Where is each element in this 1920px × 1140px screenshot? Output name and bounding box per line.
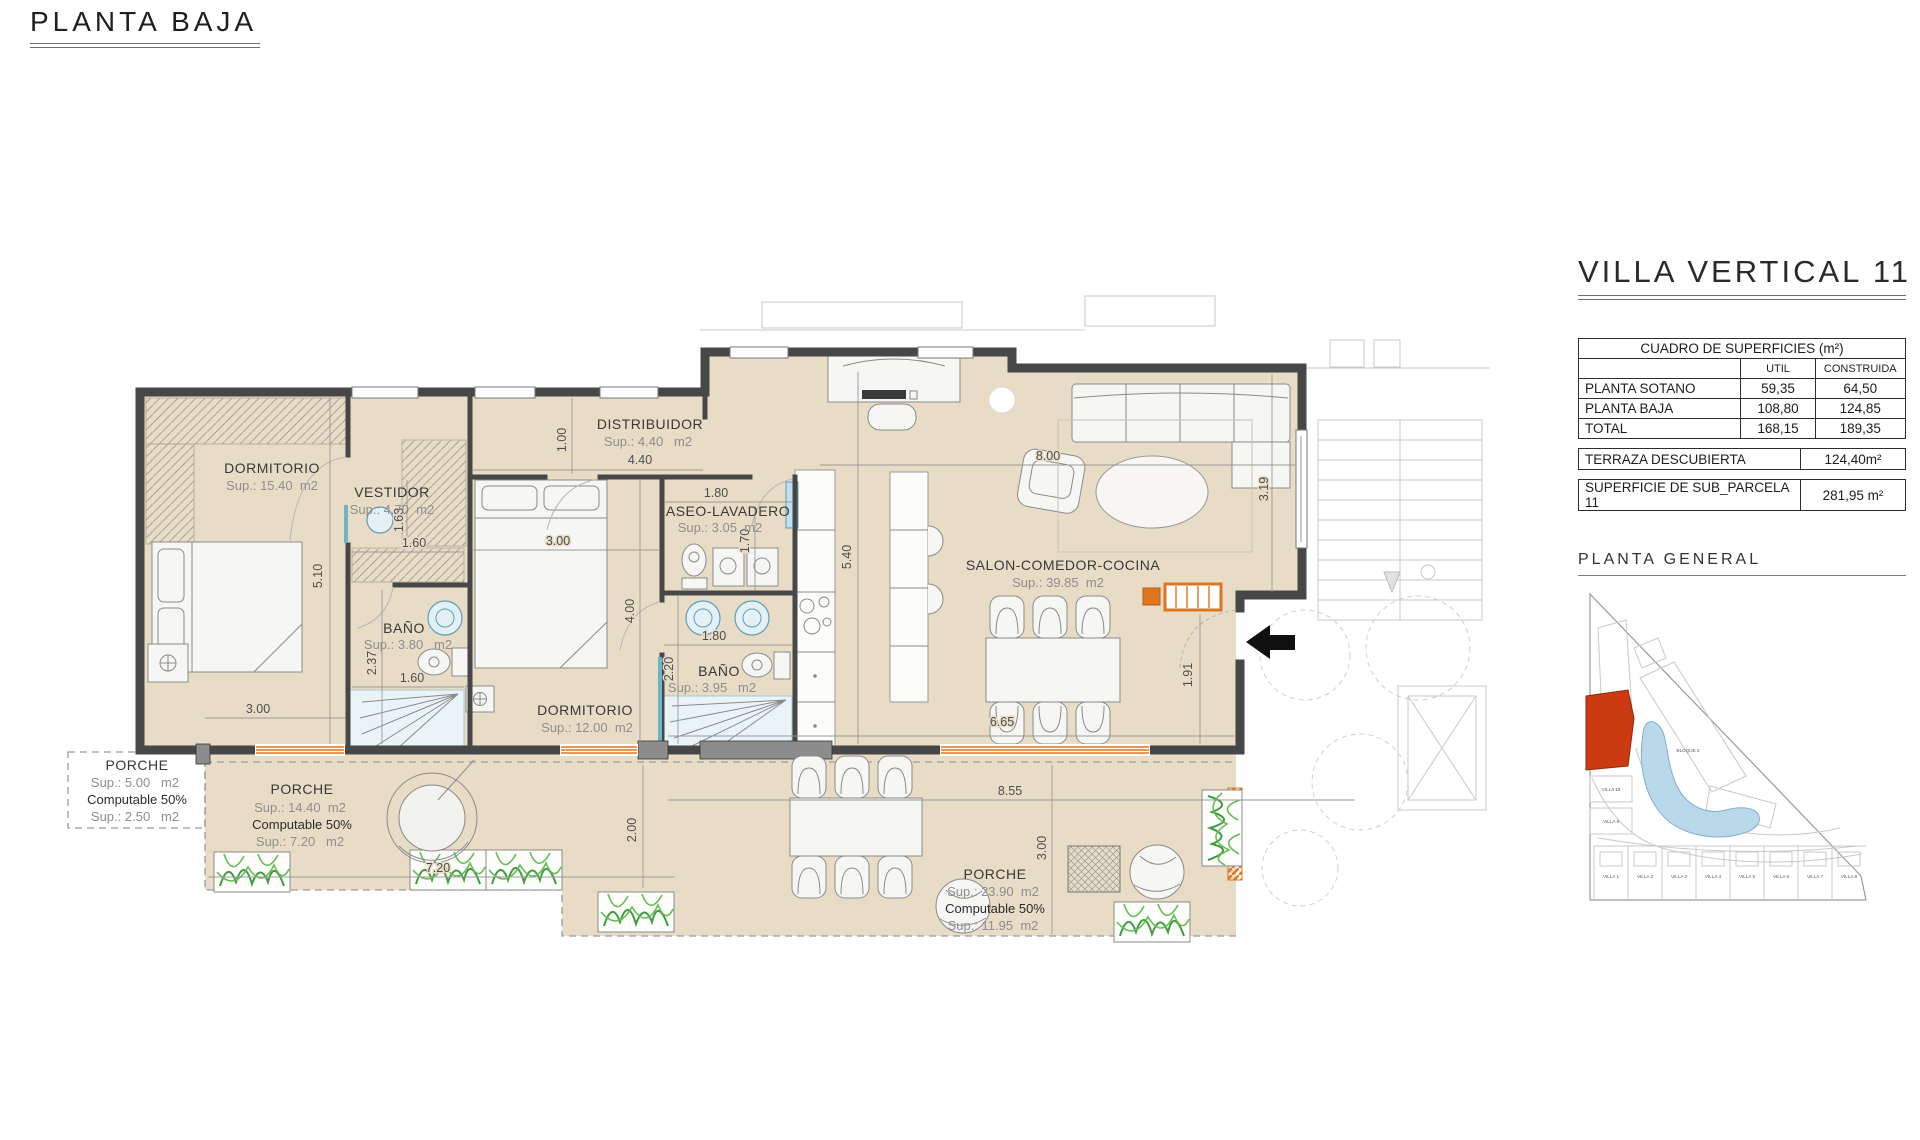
surfaces-table: CUADRO DE SUPERFICIES (m²) UTIL CONSTRUI… — [1578, 338, 1906, 439]
terraza-table: TERRAZA DESCUBIERTA 124,40m² — [1578, 448, 1906, 470]
room-sup-dormitorio2: Sup.: 12.00 m2 — [541, 720, 633, 735]
room-label-porche3: PORCHE — [964, 866, 1027, 882]
site-villa-label: VILLA 1 — [1603, 874, 1620, 879]
surfaces-col-construida: CONSTRUIDA — [1815, 359, 1906, 379]
dim-1.00: 1.00 — [555, 428, 569, 452]
dim-3.19: 3.19 — [1257, 477, 1271, 501]
info-panel: VILLA VERTICAL 11 CUADRO DE SUPERFICIES … — [1578, 254, 1906, 909]
room-comp-porche1: Computable 50% — [87, 792, 187, 807]
parcela-label: SUPERFICIE DE SUB_PARCELA 11 — [1579, 480, 1801, 511]
dim-8.00: 8.00 — [1036, 449, 1060, 463]
lounge-chair — [1130, 845, 1184, 899]
room-sup-porche3: Sup.: 23.90 m2 — [947, 884, 1039, 899]
room-sup-aseo: Sup.: 3.05 m2 — [678, 520, 763, 535]
room-sup-salon: Sup.: 39.85 m2 — [1012, 575, 1104, 590]
dim-3.00-porch: 3.00 — [1035, 836, 1049, 860]
room-sup-distribuidor: Sup.: 4.40 m2 — [604, 434, 692, 449]
row-util: 168,15 — [1741, 419, 1815, 439]
room-sup-porche2: Sup.: 14.40 m2 — [254, 800, 346, 815]
site-villa-label: VILLA 3 — [1671, 874, 1688, 879]
site-villa9-label: VILLA 9 — [1603, 819, 1620, 824]
room-label-aseo: ASEO-LAVADERO — [666, 503, 790, 519]
dim-1.80-aseo: 1.80 — [704, 486, 728, 500]
room-label-porche2: PORCHE — [271, 781, 334, 797]
table-row: TOTAL 168,15 189,35 — [1579, 419, 1906, 439]
room-label-salon: SALON-COMEDOR-COCINA — [966, 557, 1161, 573]
row-construida: 64,50 — [1815, 379, 1906, 399]
site-villa-label: VILLA 4 — [1705, 874, 1722, 879]
site-villa-label: VILLA 6 — [1773, 874, 1790, 879]
room-comp-porche3: Computable 50% — [945, 901, 1045, 916]
room-sup2-porche3: Sup.: 11.95 m2 — [948, 918, 1039, 933]
terraza-label: TERRAZA DESCUBIERTA — [1579, 449, 1801, 470]
row-construida: 189,35 — [1815, 419, 1906, 439]
site-villa-label: VILLA 5 — [1739, 874, 1756, 879]
elevator-context — [1398, 686, 1486, 810]
parcela-table: SUPERFICIE DE SUB_PARCELA 11 281,95 m² — [1578, 479, 1906, 511]
dim-3.00-bed2: 3.00 — [546, 534, 570, 548]
dim-1.91: 1.91 — [1181, 663, 1195, 687]
dim-5.40: 5.40 — [840, 545, 854, 569]
site-villa-label: VILLA 2 — [1637, 874, 1654, 879]
dim-3.00-bed1: 3.00 — [246, 702, 270, 716]
room-label-vestidor: VESTIDOR — [354, 484, 430, 500]
stairs-context — [1318, 420, 1482, 620]
porch-floor — [205, 746, 1236, 936]
row-construida: 124,85 — [1815, 399, 1906, 419]
site-plan: VILLA 10 VILLA 9 BLOQUE 2 VILLA 1 — [1578, 588, 1874, 904]
row-util: 108,80 — [1741, 399, 1815, 419]
dim-1.60-bano1: 1.60 — [400, 671, 424, 685]
dim-6.65: 6.65 — [990, 715, 1014, 729]
room-label-bano1: BAÑO — [383, 620, 425, 636]
room-comp-porche2: Computable 50% — [252, 817, 352, 832]
room-label-dormitorio1: DORMITORIO — [224, 460, 320, 476]
site-plan-title: PLANTA GENERAL — [1578, 551, 1906, 576]
room-sup-dormitorio1: Sup.: 15.40 m2 — [226, 478, 318, 493]
title-underline — [30, 43, 260, 48]
table-row: PLANTA SOTANO 59,35 64,50 — [1579, 379, 1906, 399]
table-row: PLANTA BAJA 108,80 124,85 — [1579, 399, 1906, 419]
surfaces-col-blank — [1579, 359, 1741, 379]
room-label-bano2: BAÑO — [698, 663, 740, 679]
dim-7.20: 7.20 — [426, 861, 450, 875]
row-label: TOTAL — [1579, 419, 1741, 439]
room-sup-porche1: Sup.: 5.00 m2 — [91, 775, 179, 790]
dim-2.37: 2.37 — [365, 651, 379, 675]
parcela-value: 281,95 m² — [1801, 480, 1906, 511]
room-label-porche1: PORCHE — [106, 757, 169, 773]
dim-1.60-vestidor: 1.60 — [402, 536, 426, 550]
entry-arrow-icon — [1246, 625, 1295, 659]
dim-1.80-bano2: 1.80 — [702, 629, 726, 643]
surfaces-col-util: UTIL — [1741, 359, 1815, 379]
row-label: PLANTA SOTANO — [1579, 379, 1741, 399]
room-sup-bano1: Sup.: 3.80 m2 — [364, 637, 452, 652]
dim-2.00: 2.00 — [625, 818, 639, 842]
villa11-highlight — [1586, 690, 1634, 770]
room-sup2-porche2: Sup.: 7.20 m2 — [256, 834, 344, 849]
page-title: PLANTA BAJA — [30, 6, 260, 38]
page-title-block: PLANTA BAJA — [30, 6, 260, 48]
villa-title: VILLA VERTICAL 11 — [1578, 254, 1906, 290]
dim-4.00: 4.00 — [623, 599, 637, 623]
dim-4.40: 4.40 — [628, 453, 652, 467]
floor-plan-sheet: PLANTA BAJA — [0, 0, 1920, 1140]
dim-8.55: 8.55 — [998, 784, 1022, 798]
room-label-distribuidor: DISTRIBUIDOR — [597, 416, 703, 432]
surfaces-table-title: CUADRO DE SUPERFICIES (m²) — [1579, 339, 1906, 359]
room-sup2-porche1: Sup.: 2.50 m2 — [91, 809, 179, 824]
site-villa-label: VILLA 8 — [1841, 874, 1858, 879]
dim-5.10: 5.10 — [311, 564, 325, 588]
terraza-value: 124,40m² — [1801, 449, 1906, 470]
villa-title-underline — [1578, 295, 1906, 300]
site-villa10-label: VILLA 10 — [1602, 787, 1621, 792]
site-bloque2-label: BLOQUE 2 — [1677, 748, 1700, 753]
room-sup-bano2: Sup.: 3.95 m2 — [668, 680, 756, 695]
dim-2.20: 2.20 — [662, 657, 676, 681]
room-label-dormitorio2: DORMITORIO — [537, 702, 633, 718]
row-util: 59,35 — [1741, 379, 1815, 399]
floorplan-drawing: 1.00 4.40 3.00 1.63 1.60 5.10 3.00 2.37 … — [40, 280, 1500, 980]
site-villa-label: VILLA 7 — [1807, 874, 1824, 879]
row-label: PLANTA BAJA — [1579, 399, 1741, 419]
room-sup-vestidor: Sup.: 4.70 m2 — [350, 502, 435, 517]
